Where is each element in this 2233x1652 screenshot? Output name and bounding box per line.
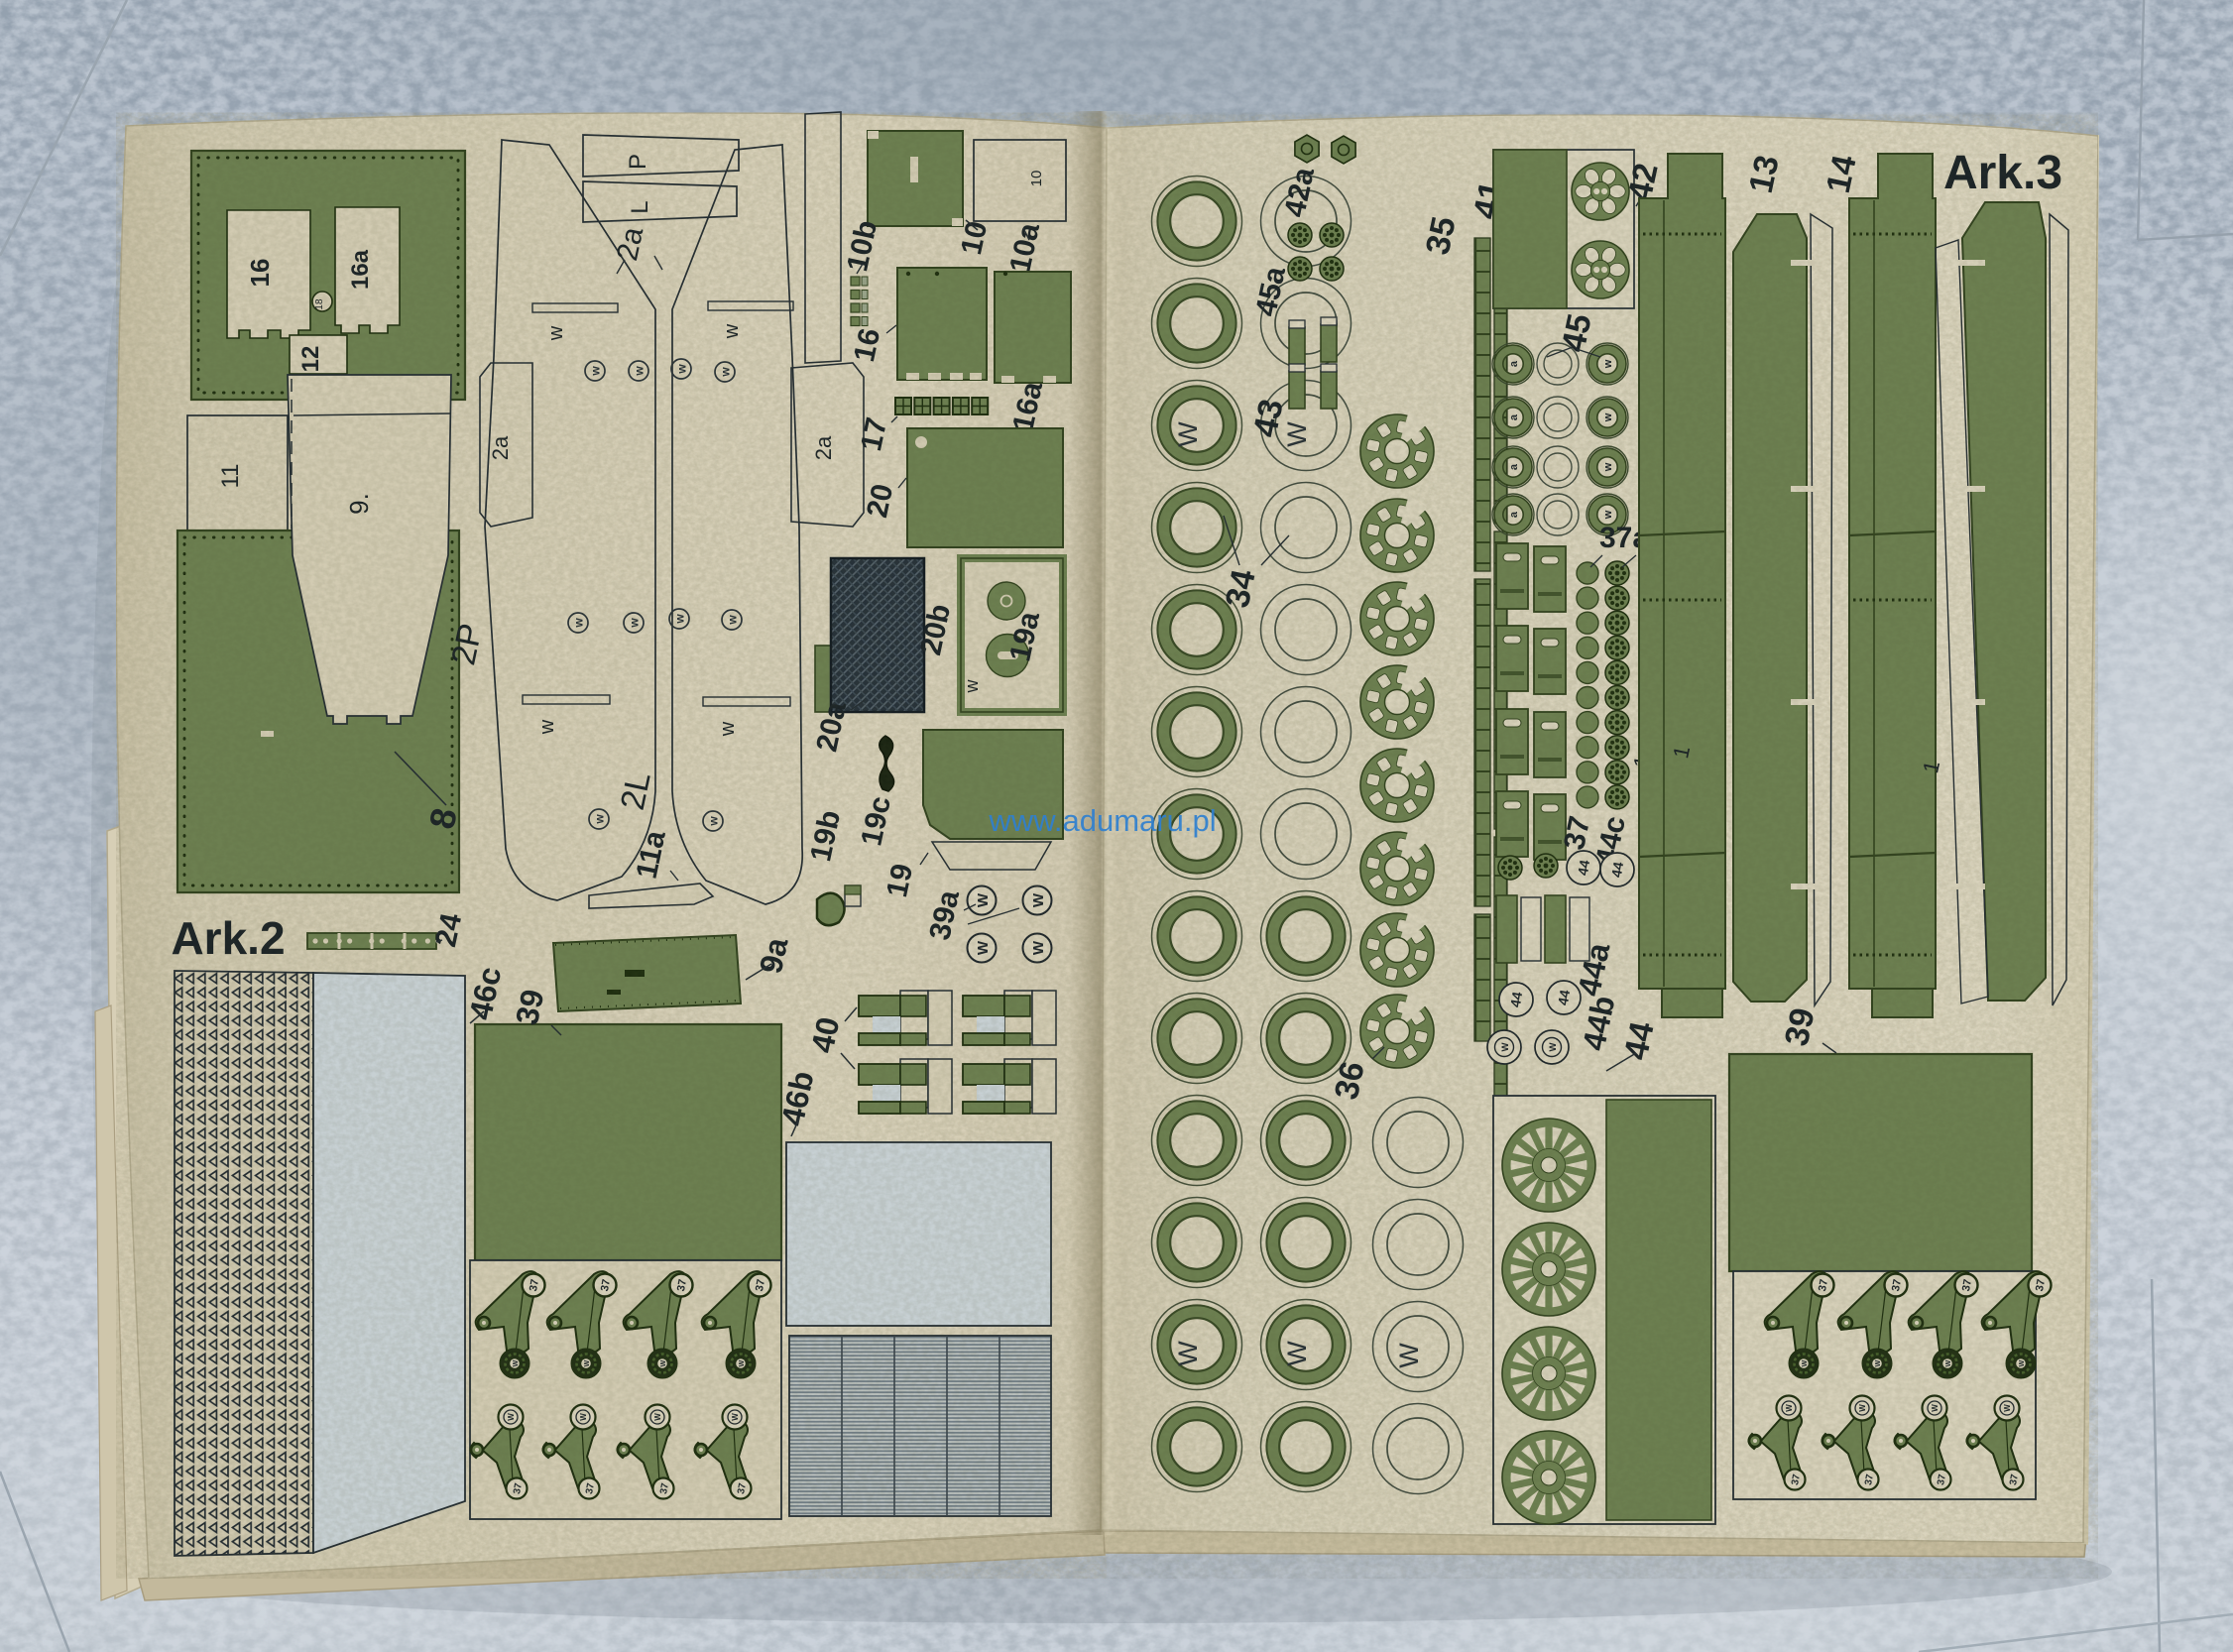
svg-text:www.adumaru.pl: www.adumaru.pl <box>988 803 1216 838</box>
